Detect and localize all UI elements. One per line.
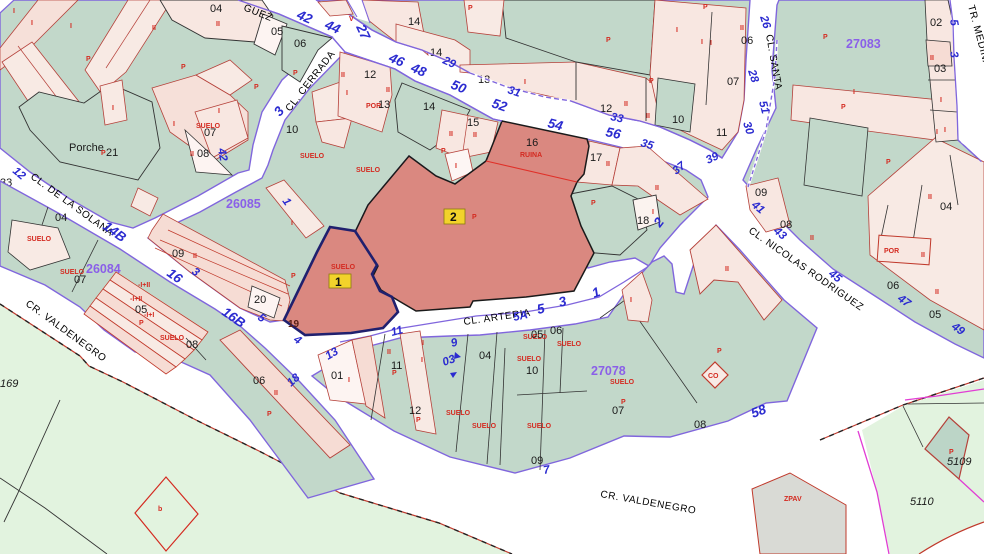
svg-text:05: 05: [929, 309, 941, 321]
svg-text:P: P: [621, 399, 626, 406]
svg-text:I: I: [112, 105, 114, 112]
svg-text:21: 21: [106, 147, 118, 159]
svg-text:04: 04: [210, 3, 222, 15]
svg-text:16: 16: [526, 137, 538, 149]
svg-text:09: 09: [755, 187, 767, 199]
svg-text:11: 11: [716, 127, 727, 139]
svg-text:P: P: [441, 148, 446, 155]
svg-text:169: 169: [0, 378, 18, 390]
svg-text:10: 10: [672, 114, 684, 126]
svg-text:07: 07: [204, 127, 216, 139]
svg-text:I: I: [630, 297, 632, 304]
svg-text:01: 01: [331, 370, 343, 382]
svg-text:14: 14: [423, 101, 435, 113]
svg-text:06: 06: [550, 325, 562, 337]
svg-text:II: II: [935, 289, 939, 296]
svg-text:-I+II: -I+II: [130, 296, 142, 303]
svg-text:I: I: [853, 89, 855, 96]
svg-text:SUELO: SUELO: [356, 167, 381, 174]
svg-text:II: II: [624, 101, 628, 108]
svg-text:P: P: [591, 200, 596, 207]
svg-text:I: I: [348, 377, 350, 384]
svg-text:P: P: [86, 56, 91, 63]
svg-text:07: 07: [727, 76, 739, 88]
svg-text:I: I: [13, 8, 15, 15]
svg-text:II: II: [606, 161, 610, 168]
svg-text:42: 42: [215, 146, 229, 162]
svg-text:2: 2: [450, 210, 457, 224]
svg-text:10: 10: [286, 124, 298, 136]
svg-text:I: I: [652, 209, 654, 216]
svg-text:I: I: [218, 108, 220, 115]
svg-text:II: II: [216, 21, 220, 28]
svg-text:I: I: [421, 357, 423, 364]
svg-text:13: 13: [378, 99, 390, 111]
svg-text:I: I: [422, 340, 424, 347]
svg-text:26084: 26084: [86, 262, 121, 276]
svg-text:I: I: [701, 39, 703, 46]
svg-text:I: I: [291, 220, 293, 227]
svg-text:P: P: [606, 37, 611, 44]
svg-text:I: I: [455, 163, 457, 170]
svg-text:07: 07: [74, 274, 86, 286]
svg-text:P: P: [717, 348, 722, 355]
svg-text:07: 07: [612, 405, 624, 417]
svg-text:II: II: [386, 87, 390, 94]
svg-text:14: 14: [408, 16, 420, 28]
svg-text:06: 06: [294, 38, 306, 50]
svg-text:CO: CO: [708, 373, 719, 380]
svg-text:I: I: [173, 121, 175, 128]
svg-text:II: II: [473, 132, 477, 139]
svg-text:P: P: [649, 78, 654, 85]
svg-text:b: b: [158, 506, 162, 513]
svg-text:05: 05: [531, 329, 543, 341]
svg-text:SUELO: SUELO: [300, 153, 325, 160]
svg-text:17: 17: [590, 152, 602, 164]
svg-text:II: II: [190, 151, 194, 158]
svg-text:P: P: [841, 104, 846, 111]
svg-text:SUELO: SUELO: [27, 236, 52, 243]
svg-text:II: II: [930, 55, 934, 62]
svg-text:II: II: [655, 185, 659, 192]
svg-text:II: II: [193, 253, 197, 260]
svg-text:10: 10: [526, 365, 538, 377]
svg-text:-I+II: -I+II: [138, 282, 150, 289]
svg-text:SUELO: SUELO: [331, 264, 356, 271]
svg-text:04: 04: [940, 201, 952, 213]
svg-text:18: 18: [637, 215, 649, 227]
svg-text:08: 08: [186, 339, 198, 351]
svg-text:ZPAV: ZPAV: [784, 496, 802, 503]
svg-text:19: 19: [288, 319, 300, 330]
svg-text:27078: 27078: [591, 364, 626, 378]
svg-text:RUINA: RUINA: [520, 152, 542, 159]
svg-text:P: P: [392, 370, 397, 377]
svg-text:I: I: [940, 97, 942, 104]
svg-text:5110: 5110: [910, 496, 935, 508]
svg-text:P: P: [139, 320, 144, 327]
svg-text:09: 09: [172, 248, 184, 260]
svg-text:I: I: [936, 129, 938, 136]
svg-text:SUELO: SUELO: [610, 379, 635, 386]
svg-text:P: P: [703, 4, 708, 11]
svg-text:P: P: [293, 70, 298, 77]
svg-text:II: II: [928, 194, 932, 201]
svg-text:08: 08: [197, 148, 209, 160]
svg-text:1: 1: [335, 275, 342, 289]
svg-text:I: I: [524, 79, 526, 86]
svg-text:03: 03: [934, 63, 946, 75]
svg-text:II: II: [725, 266, 729, 273]
svg-text:05: 05: [271, 26, 283, 38]
svg-text:SUELO: SUELO: [517, 356, 542, 363]
svg-text:15: 15: [467, 117, 479, 129]
svg-text:II: II: [740, 25, 744, 32]
svg-text:P: P: [254, 84, 259, 91]
svg-text:II: II: [152, 25, 156, 32]
svg-text:27083: 27083: [846, 37, 881, 51]
svg-text:P: P: [823, 34, 828, 41]
svg-text:P: P: [181, 64, 186, 71]
svg-text:II: II: [810, 235, 814, 242]
svg-text:P: P: [267, 411, 272, 418]
svg-text:II: II: [646, 113, 650, 120]
svg-text:P: P: [949, 449, 954, 456]
svg-text:P: P: [468, 5, 473, 12]
svg-text:SUELO: SUELO: [557, 341, 582, 348]
svg-text:02: 02: [930, 17, 942, 29]
svg-text:04: 04: [479, 350, 491, 362]
svg-text:I: I: [710, 40, 712, 47]
svg-text:I: I: [346, 90, 348, 97]
svg-text:Porche: Porche: [69, 142, 104, 154]
svg-text:I: I: [676, 27, 678, 34]
svg-text:06: 06: [253, 375, 265, 387]
svg-text:26085: 26085: [226, 197, 261, 211]
svg-text:I: I: [944, 127, 946, 134]
svg-text:06: 06: [741, 35, 753, 47]
svg-text:5109: 5109: [947, 456, 971, 468]
svg-text:II: II: [449, 131, 453, 138]
svg-text:II: II: [341, 72, 345, 79]
svg-text:12: 12: [364, 69, 376, 81]
svg-text:09: 09: [531, 455, 543, 467]
svg-text:P: P: [416, 417, 421, 424]
svg-text:SUELO: SUELO: [446, 410, 471, 417]
svg-text:POR: POR: [884, 248, 899, 255]
svg-text:II: II: [387, 349, 391, 356]
svg-text:I: I: [31, 20, 33, 27]
svg-text:II: II: [274, 390, 278, 397]
svg-text:II: II: [921, 252, 925, 259]
svg-text:06: 06: [887, 280, 899, 292]
svg-text:P: P: [886, 159, 891, 166]
svg-text:SUELO: SUELO: [527, 423, 552, 430]
svg-text:20: 20: [254, 294, 266, 306]
svg-text:SUELO: SUELO: [160, 335, 185, 342]
svg-text:-I+I: -I+I: [144, 312, 154, 319]
svg-text:I: I: [70, 23, 72, 30]
svg-text:04: 04: [55, 212, 67, 224]
svg-text:SUELO: SUELO: [472, 423, 497, 430]
svg-text:V: V: [349, 16, 354, 23]
svg-text:P: P: [291, 273, 296, 280]
svg-text:P: P: [472, 214, 477, 221]
svg-text:12: 12: [409, 405, 421, 417]
svg-text:08: 08: [694, 419, 706, 431]
